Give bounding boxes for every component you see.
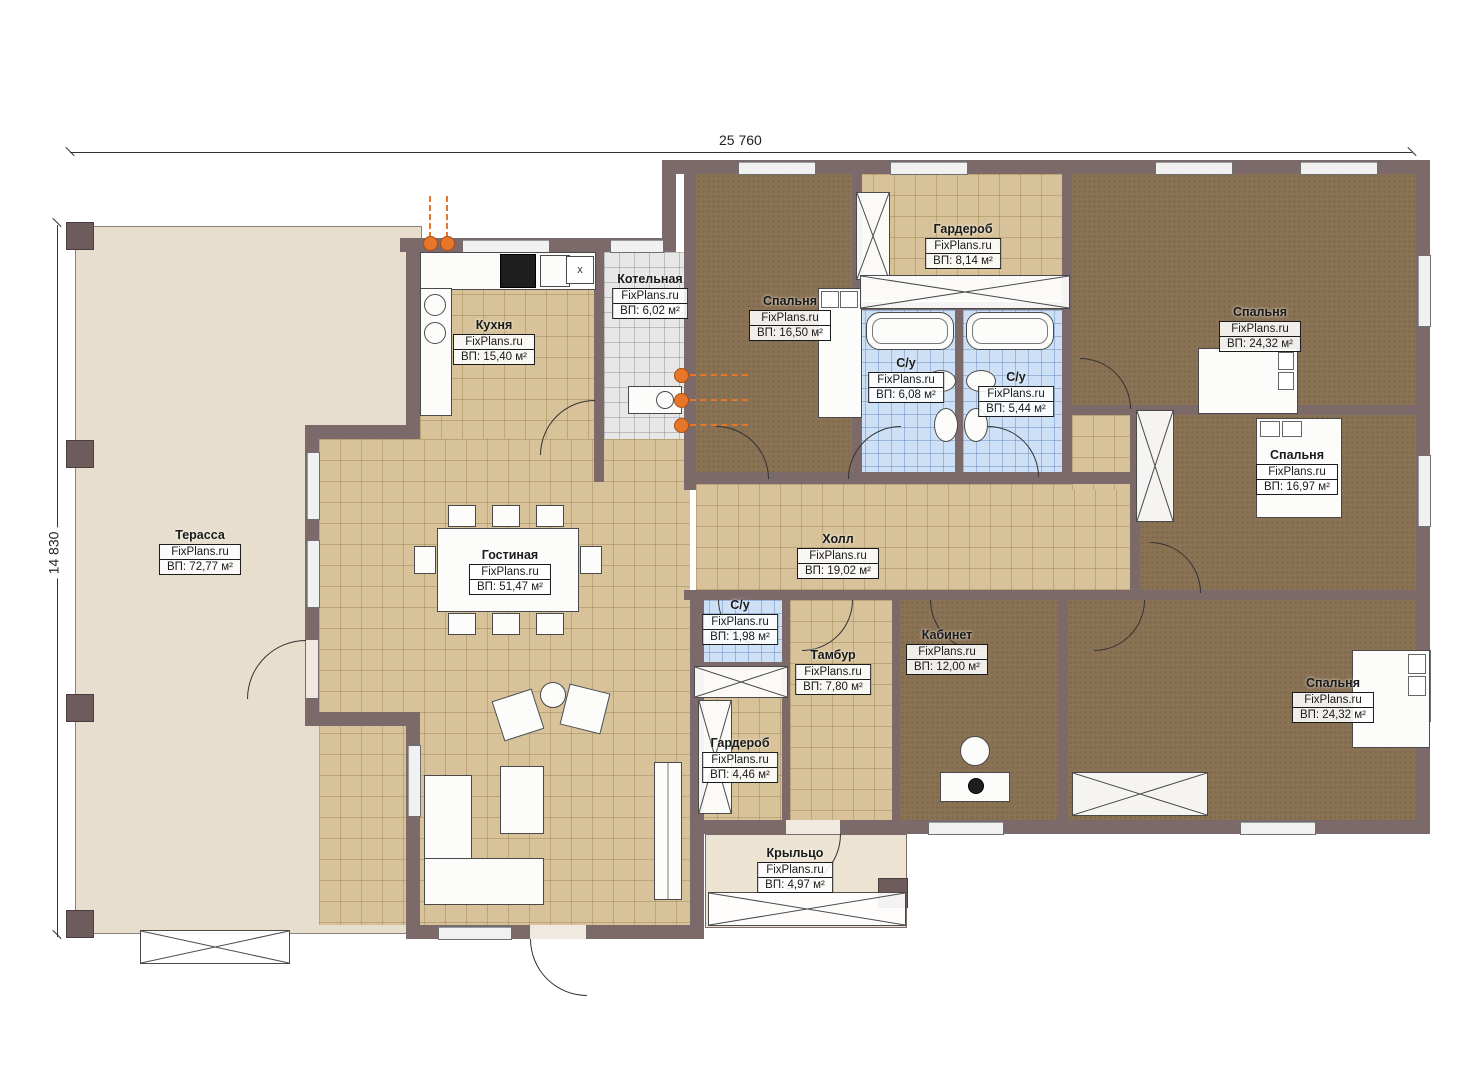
chair-icon: [580, 546, 602, 574]
pipe-line: [690, 424, 748, 426]
door-arc: [530, 939, 587, 996]
pipe-marker-icon: [674, 393, 689, 408]
dimension-line-left: [57, 225, 58, 937]
wall-segment: [305, 425, 420, 439]
window: [462, 239, 550, 253]
pillow-icon: [1282, 421, 1302, 437]
terrace-post: [66, 694, 94, 722]
washer-icon: [424, 322, 446, 344]
pipe-line: [429, 196, 431, 238]
room-label-bedroom1: Спальня FixPlans.ruВП: 16,50 м²: [749, 294, 831, 341]
window: [738, 161, 816, 175]
terrace-post: [66, 222, 94, 250]
room-label-vestibule: Тамбур FixPlans.ruВП: 7,80 м²: [795, 648, 871, 695]
window: [1417, 255, 1431, 327]
pipe-marker-icon: [440, 236, 455, 251]
coffee-table: [500, 766, 544, 834]
room-label-kitchen: Кухня FixPlans.ruВП: 15,40 м²: [453, 318, 535, 365]
closet-icon: [1136, 410, 1174, 522]
window: [1155, 161, 1233, 175]
closet-icon: [860, 275, 1070, 309]
chair-icon: [448, 505, 476, 527]
pipe-marker-icon: [674, 368, 689, 383]
pipe-marker-icon: [423, 236, 438, 251]
room-label-bedroom3: Спальня FixPlans.ruВП: 16,97 м²: [1256, 448, 1338, 495]
room-label-terrace: Терасса FixPlans.ruВП: 72,77 м²: [159, 528, 241, 575]
terrace-post: [66, 910, 94, 938]
wall-segment: [892, 598, 900, 820]
pillow-icon: [1278, 352, 1294, 370]
door-gap: [306, 640, 318, 698]
terrace-steps: [140, 930, 290, 964]
boiler-dial-icon: [656, 391, 674, 409]
dimension-width-label: 25 760: [715, 132, 766, 148]
terrace-post: [66, 440, 94, 468]
closet-icon: [1072, 772, 1208, 816]
window: [928, 821, 1004, 835]
closet-icon: [856, 192, 890, 280]
dimension-line-top: [70, 152, 1412, 153]
chair-icon: [536, 505, 564, 527]
chair-icon: [492, 613, 520, 635]
window: [438, 926, 512, 940]
wall-segment: [406, 238, 420, 439]
door-gap: [530, 925, 586, 939]
room-label-study: Кабинет FixPlans.ruВП: 12,00 м²: [906, 628, 988, 675]
pipe-line: [690, 374, 748, 376]
vent-marker: х: [566, 256, 594, 284]
room-label-living: Гостиная FixPlans.ruВП: 51,47 м²: [469, 548, 551, 595]
chair-icon: [492, 505, 520, 527]
room-label-bedroom4: Спальня FixPlans.ruВП: 24,32 м²: [1292, 676, 1374, 723]
door-gap: [786, 820, 840, 834]
wall-segment: [782, 598, 790, 820]
toilet-icon: [934, 408, 958, 442]
closet-icon: [694, 666, 788, 698]
hall-floor: [696, 484, 1130, 590]
wall-segment: [1058, 598, 1068, 820]
wall-segment: [1062, 160, 1072, 482]
room-label-bathroom3: С/у FixPlans.ruВП: 1,98 м²: [702, 598, 778, 645]
window: [306, 452, 320, 520]
pipe-marker-icon: [674, 418, 689, 433]
pillow-icon: [1260, 421, 1280, 437]
pillow-icon: [840, 291, 858, 308]
wall-segment: [684, 590, 1430, 600]
window: [890, 161, 968, 175]
room-label-bedroom2: Спальня FixPlans.ruВП: 24,32 м²: [1219, 305, 1301, 352]
desk-chair-icon: [960, 736, 990, 766]
sofa-icon: [424, 858, 544, 905]
wall-segment: [684, 160, 696, 490]
window: [1240, 821, 1316, 835]
pillow-icon: [1408, 654, 1426, 674]
room-label-boiler: Котельная FixPlans.ruВП: 6,02 м²: [612, 272, 688, 319]
chair-icon: [536, 613, 564, 635]
window: [407, 745, 421, 817]
window: [1300, 161, 1378, 175]
chair-icon: [414, 546, 436, 574]
wall-segment: [955, 310, 963, 482]
room-label-wardrobe1: Гардероб FixPlans.ruВП: 8,14 м²: [925, 222, 1001, 269]
window: [1417, 455, 1431, 527]
washer-icon: [424, 294, 446, 316]
stove-icon: [500, 254, 536, 288]
porch-steps: [708, 892, 906, 926]
room-label-bathroom1: С/у FixPlans.ruВП: 6,08 м²: [868, 356, 944, 403]
tv-cabinet: [654, 762, 682, 900]
chair-icon: [448, 613, 476, 635]
room-label-wardrobe2: Гардероб FixPlans.ruВП: 4,46 м²: [702, 736, 778, 783]
pillow-icon: [1408, 676, 1426, 696]
window: [610, 239, 664, 253]
side-table-icon: [540, 682, 566, 708]
room-label-porch: Крыльцо FixPlans.ruВП: 4,97 м²: [757, 846, 833, 893]
pillow-icon: [1278, 372, 1294, 390]
pipe-line: [446, 196, 448, 238]
room-label-hall: Холл FixPlans.ruВП: 19,02 м²: [797, 532, 879, 579]
wall-segment: [305, 712, 420, 726]
printer-icon: [968, 778, 984, 794]
dimension-height-label: 14 830: [45, 528, 61, 579]
window: [306, 540, 320, 608]
room-label-bathroom2: С/у FixPlans.ruВП: 5,44 м²: [978, 370, 1054, 417]
bathtub-icon: [966, 312, 1054, 350]
pipe-line: [690, 399, 748, 401]
floor-plan-canvas: 25 760 14 830: [0, 0, 1473, 1080]
bathtub-icon: [866, 312, 954, 350]
